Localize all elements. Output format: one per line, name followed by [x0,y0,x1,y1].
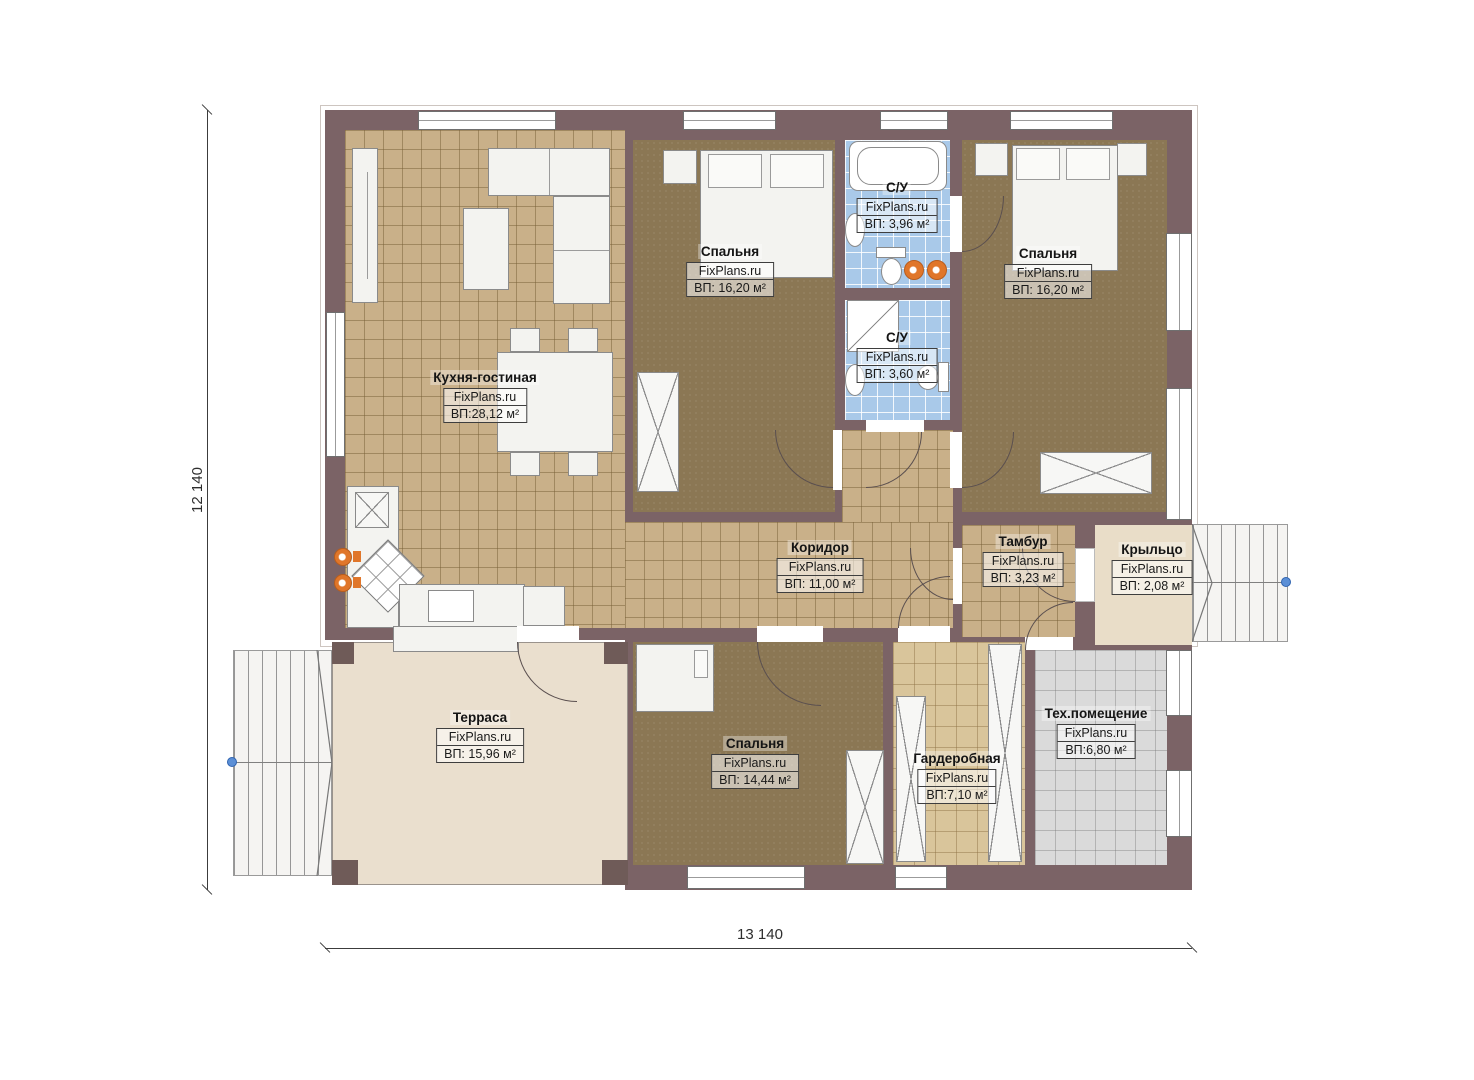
room-label-porch: Крыльцо FixPlans.ru ВП: 2,08 м² [1112,542,1193,595]
toilet [881,258,902,285]
door-bedroom1 [833,430,842,490]
nightstand [663,150,697,184]
window [418,111,556,130]
room-area: ВП: 15,96 м² [437,745,523,762]
room-label-kitchen-living: Кухня-гостиная FixPlans.ru ВП:28,12 м² [430,370,539,423]
label-box: FixPlans.ru ВП: 16,20 м² [686,262,774,297]
radiator-icon [334,548,352,566]
room-name: Крыльцо [1118,542,1185,557]
room-name: Тамбур [996,534,1051,549]
door-bathroom1 [950,196,962,252]
room-label-wardrobe: Гардеробная FixPlans.ru ВП:7,10 м² [910,751,1003,804]
nightstand [975,143,1008,176]
watermark-text: FixPlans.ru [437,729,523,745]
label-box: FixPlans.ru ВП: 3,60 м² [857,348,938,383]
pillow [708,154,762,188]
watermark-text: FixPlans.ru [712,755,798,771]
terrace-post [332,860,358,885]
window [1166,650,1192,716]
room-area: ВП:7,10 м² [919,786,996,803]
dimension-line-horizontal [325,948,1192,949]
room-area: ВП: 16,20 м² [687,279,773,296]
sofa [488,148,610,196]
coffee-table [463,208,509,290]
label-box: FixPlans.ru ВП: 14,44 м² [711,754,799,789]
room-label-bedroom2: Спальня FixPlans.ru ВП: 16,20 м² [1004,246,1092,299]
toilet-tank [876,247,906,258]
terrace-post [332,642,354,664]
watermark-text: FixPlans.ru [1005,265,1091,281]
pillow [1016,148,1060,180]
label-box: FixPlans.ru ВП: 3,96 м² [857,198,938,233]
room-area: ВП: 3,60 м² [858,365,937,382]
window [895,866,947,889]
room-name: Кухня-гостиная [430,370,539,385]
watermark-text: FixPlans.ru [858,199,937,215]
room-name: Спальня [698,244,762,259]
washer-icon [927,260,947,280]
room-area: ВП: 3,96 м² [858,215,937,232]
room-area: ВП: 14,44 м² [712,771,798,788]
entry-marker-terrace [227,757,237,767]
appliance [523,586,565,626]
room-name: Гардеробная [910,751,1003,766]
watermark-text: FixPlans.ru [984,553,1063,569]
door-kitchen-terrace [517,626,579,642]
room-label-vestibule: Тамбур FixPlans.ru ВП: 3,23 м² [983,534,1064,587]
door-wardrobe [898,626,950,642]
door-bedroom2 [950,432,962,488]
window [880,111,948,130]
watermark-text: FixPlans.ru [778,559,863,575]
door-bathroom2 [866,420,924,432]
door-corridor-vestibule [953,548,962,604]
label-box: FixPlans.ru ВП:28,12 м² [443,388,527,423]
room-label-corridor: Коридор FixPlans.ru ВП: 11,00 м² [777,540,864,593]
label-box: FixPlans.ru ВП: 16,20 м² [1004,264,1092,299]
room-area: ВП:6,80 м² [1058,741,1135,758]
sink [428,590,474,622]
room-label-tech: Тех.помещение FixPlans.ru ВП:6,80 м² [1042,706,1151,759]
watermark-text: FixPlans.ru [1113,561,1192,577]
wardrobe-cabinet [637,372,679,492]
room-area: ВП: 3,23 м² [984,569,1063,586]
label-box: FixPlans.ru ВП: 2,08 м² [1112,560,1193,595]
terrace-post [604,642,628,664]
room-name: С/У [883,180,911,195]
stairs-cut-mark [233,650,332,876]
chair [510,452,540,476]
label-box: FixPlans.ru ВП: 11,00 м² [777,558,864,593]
wardrobe-cabinet [846,750,884,864]
dimension-label-width: 13 140 [710,926,810,944]
pillow [770,154,824,188]
room-name: Коридор [788,540,852,555]
door-vestibule-porch [1075,548,1095,602]
window [326,312,345,457]
chair [568,328,598,352]
room-area: ВП: 11,00 м² [778,575,863,592]
toilet-tank [938,362,949,392]
room-label-bedroom3: Спальня FixPlans.ru ВП: 14,44 м² [711,736,799,789]
watermark-text: FixPlans.ru [687,263,773,279]
chair [510,328,540,352]
floor-plan-canvas: 12 140 13 140 Кухня-гостиная FixPlans.ru… [0,0,1474,1080]
pillow [1066,148,1110,180]
window [687,866,805,889]
room-area: ВП: 16,20 м² [1005,281,1091,298]
watermark-text: FixPlans.ru [444,389,526,405]
chair [568,452,598,476]
nightstand [1117,143,1147,176]
dimension-label-height: 12 140 [189,460,207,520]
label-box: FixPlans.ru ВП: 3,23 м² [983,552,1064,587]
terrace-post [602,860,628,885]
sofa-chaise [553,196,610,304]
window [1166,388,1192,520]
entry-marker-porch [1281,577,1291,587]
watermark-text: FixPlans.ru [1058,725,1135,741]
window [1166,233,1192,331]
room-label-terrace: Терраса FixPlans.ru ВП: 15,96 м² [436,710,524,763]
radiator-icon [334,574,352,592]
room-name: С/У [883,330,911,345]
kitchen-sink-unit [355,492,389,528]
pillow [694,650,708,678]
label-box: FixPlans.ru ВП:7,10 м² [918,769,997,804]
room-label-bathroom1: С/У FixPlans.ru ВП: 3,96 м² [857,180,938,233]
label-box: FixPlans.ru ВП:6,80 м² [1057,724,1136,759]
kitchen-counter [393,626,519,652]
washer-icon [904,260,924,280]
window [1010,111,1113,130]
window [683,111,776,130]
room-name: Тех.помещение [1042,706,1151,721]
window [1166,770,1192,837]
watermark-text: FixPlans.ru [919,770,996,786]
radiator-icon [353,577,361,588]
room-label-bedroom1: Спальня FixPlans.ru ВП: 16,20 м² [686,244,774,297]
room-area: ВП:28,12 м² [444,405,526,422]
watermark-text: FixPlans.ru [858,349,937,365]
door-bedroom3 [757,626,823,642]
room-name: Терраса [450,710,510,725]
tv-console [352,148,378,303]
room-name: Спальня [1016,246,1080,261]
wardrobe-cabinet [1040,452,1152,494]
room-area: ВП: 2,08 м² [1113,577,1192,594]
room-label-bathroom2: С/У FixPlans.ru ВП: 3,60 м² [857,330,938,383]
radiator-icon [353,551,361,562]
dimension-line-vertical [207,110,208,890]
room-floor-terrace [332,642,628,885]
room-name: Спальня [723,736,787,751]
label-box: FixPlans.ru ВП: 15,96 м² [436,728,524,763]
stairs-cut-mark [1192,524,1288,642]
